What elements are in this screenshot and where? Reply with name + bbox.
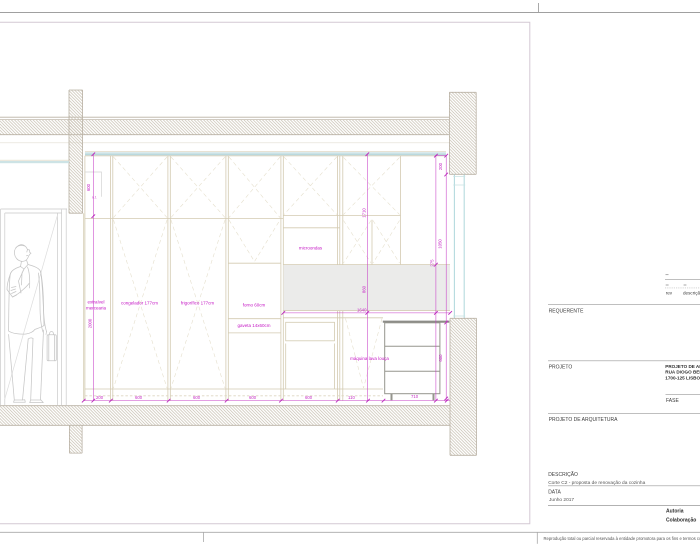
svg-text:PROJETO: PROJETO	[549, 364, 573, 370]
svg-text:rev: rev	[666, 291, 673, 296]
svg-text:PROJETO DE ALTERAÇÃO: PROJETO DE ALTERAÇÃO	[665, 363, 700, 369]
svg-text:extraível: extraível	[87, 299, 104, 304]
svg-text:2000: 2000	[87, 318, 92, 328]
svg-text:600: 600	[193, 395, 201, 400]
svg-text:DESCRIÇÃO: DESCRIÇÃO	[548, 471, 578, 478]
svg-text:mercearia: mercearia	[86, 306, 107, 311]
svg-text:1700-125 LISBOA: 1700-125 LISBOA	[665, 375, 700, 380]
svg-text:microondas: microondas	[299, 245, 323, 250]
svg-text:Autoria: Autoria	[666, 508, 684, 514]
svg-text:FASE: FASE	[666, 398, 679, 404]
svg-text:descrição: descrição	[683, 291, 700, 296]
svg-text:600: 600	[135, 395, 143, 400]
svg-text:275: 275	[430, 259, 435, 267]
svg-text:600: 600	[86, 183, 91, 191]
svg-text:frigorífico 177cm: frigorífico 177cm	[181, 301, 215, 306]
svg-text:710: 710	[411, 394, 419, 399]
svg-text:600: 600	[305, 395, 313, 400]
svg-text:1710: 1710	[362, 208, 367, 218]
svg-text:600: 600	[438, 354, 443, 362]
svg-text:860: 860	[362, 285, 367, 293]
svg-text:Junho 2017: Junho 2017	[549, 497, 574, 503]
svg-text:Reprodução total ou parcial re: Reprodução total ou parcial reservada à …	[544, 536, 700, 541]
svg-text:congelador 177cm: congelador 177cm	[121, 301, 158, 306]
svg-text:Corte C2 - proposta de renovaç: Corte C2 - proposta de renovação da cozi…	[548, 480, 645, 486]
svg-text:DATA: DATA	[548, 490, 561, 496]
svg-text:forno 60cm: forno 60cm	[243, 302, 266, 307]
svg-text:n.t.: n.t.	[92, 196, 97, 200]
svg-text:RUA DIOGO BERNARDES: RUA DIOGO BERNARDES	[665, 370, 700, 375]
svg-text:1050: 1050	[438, 239, 443, 249]
svg-text:REQUERENTE: REQUERENTE	[549, 308, 584, 314]
svg-text:máquina lava louça: máquina lava louça	[350, 356, 389, 361]
svg-text:gaveta 14x60cm: gaveta 14x60cm	[237, 323, 270, 328]
svg-text:200: 200	[96, 395, 104, 400]
svg-text:600: 600	[249, 395, 257, 400]
svg-text:1640: 1640	[357, 308, 367, 313]
svg-text:Colaboração: Colaboração	[666, 517, 696, 523]
svg-text:110: 110	[348, 395, 355, 400]
svg-text:PROJETO DE ARQUITETURA: PROJETO DE ARQUITETURA	[549, 417, 618, 423]
svg-text:200: 200	[438, 162, 443, 170]
